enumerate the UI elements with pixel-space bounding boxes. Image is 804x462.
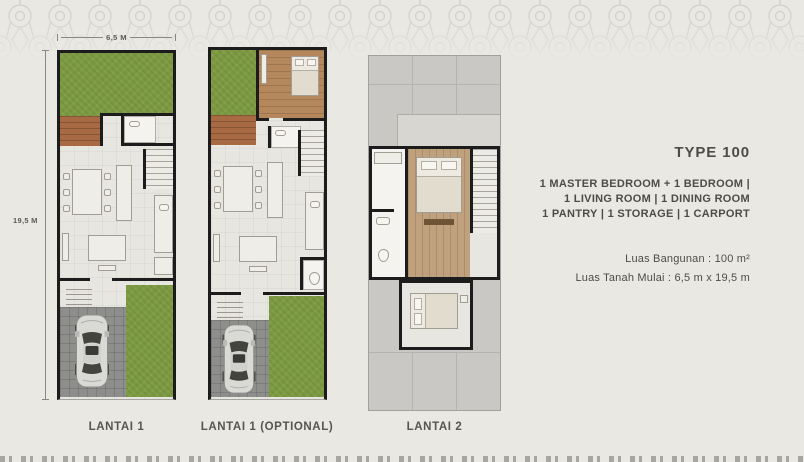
wardrobe (374, 152, 402, 164)
nightstand (460, 295, 468, 303)
interior-wall (300, 257, 324, 260)
car-top-view (222, 324, 256, 394)
width-dimension: 6,5 M (57, 33, 176, 42)
chair (104, 205, 111, 212)
chair (63, 189, 70, 196)
front-garden (60, 53, 173, 116)
sofa (88, 235, 126, 261)
staircase (298, 130, 324, 176)
storage (154, 257, 173, 275)
bathroom (271, 126, 301, 148)
powder-room (124, 116, 156, 143)
building-area: Luas Bangunan : 100 m² (410, 250, 750, 269)
interior-wall (372, 209, 394, 212)
interior-wall (268, 126, 271, 148)
room-list-line-1: 1 MASTER BEDROOM + 1 BEDROOM | (410, 177, 750, 192)
rear-wall (112, 278, 173, 281)
bed (291, 56, 319, 96)
roof-seam (412, 352, 413, 410)
second-bedroom (399, 280, 473, 350)
rear-wall (60, 278, 90, 281)
height-dimension (45, 50, 46, 400)
kitchen-counter (305, 192, 324, 250)
kitchen-island (267, 162, 283, 218)
height-dimension-label: 19,5 M (13, 216, 38, 225)
sink (376, 217, 390, 225)
interior-wall (283, 118, 324, 121)
type-title: TYPE 100 (410, 144, 750, 161)
back-steps (217, 302, 243, 318)
coffee-table (249, 266, 267, 272)
toilet (309, 272, 320, 285)
optional-bedroom (256, 50, 324, 118)
tv-console (62, 233, 69, 261)
interior-wall (300, 257, 303, 290)
wardrobe (261, 54, 267, 84)
duvet (292, 70, 318, 95)
duvet (425, 294, 457, 328)
chair (255, 202, 262, 209)
kitchen-island (116, 165, 132, 221)
rear-wall (211, 292, 241, 295)
interior-wall (256, 50, 259, 118)
rear-wall (263, 292, 324, 295)
pillow (295, 59, 304, 66)
chair (214, 170, 221, 177)
plan-label-lantai-1: LANTAI 1 (57, 421, 176, 433)
chair (104, 189, 111, 196)
dining-table (72, 169, 102, 215)
room-list-line-3: 1 PANTRY | 1 STORAGE | 1 CARPORT (410, 207, 750, 222)
roof-seam (369, 84, 500, 85)
coffee-table (98, 265, 116, 271)
car-top-view (75, 313, 109, 389)
sofa (239, 236, 277, 262)
brochure-canvas: 6,5 M 19,5 M (0, 0, 804, 462)
side-garden (126, 285, 173, 397)
chair (63, 173, 70, 180)
pillow (414, 313, 422, 325)
interior-wall (100, 113, 103, 146)
room-list-line-2: 1 LIVING ROOM | 1 DINING ROOM (410, 192, 750, 207)
chair (214, 202, 221, 209)
tv-console (213, 234, 220, 262)
chair (255, 186, 262, 193)
master-bathroom (372, 149, 405, 277)
chair (104, 173, 111, 180)
entry-deck (60, 116, 100, 146)
roof-seam (456, 352, 457, 410)
dining-table (223, 166, 253, 212)
bed (410, 293, 458, 329)
floorplan-lantai-1 (57, 50, 176, 400)
staircase (143, 149, 173, 189)
land-area: Luas Tanah Mulai : 6,5 m x 19,5 m (410, 269, 750, 288)
kitchen-sink (310, 201, 320, 208)
front-garden (211, 50, 256, 115)
decorative-pattern-bottom (0, 456, 804, 462)
interior-wall (121, 143, 173, 146)
back-steps (66, 289, 92, 305)
side-garden (269, 296, 324, 397)
plan-label-lantai-2: LANTAI 2 (368, 421, 501, 433)
toilet (378, 249, 389, 262)
room-list: 1 MASTER BEDROOM + 1 BEDROOM | 1 LIVING … (410, 177, 750, 222)
area-info: Luas Bangunan : 100 m² Luas Tanah Mulai … (410, 250, 750, 288)
roof-seam (369, 352, 500, 353)
interior-wall (121, 116, 124, 143)
kitchen-counter (154, 195, 173, 253)
bathroom-2 (303, 260, 324, 290)
chair (214, 186, 221, 193)
floorplan-lantai-1-optional (208, 47, 327, 400)
lower-roof (397, 114, 500, 146)
chair (255, 170, 262, 177)
width-dimension-label: 6,5 M (106, 33, 127, 42)
plan-label-lantai-1-optional: LANTAI 1 (OPTIONAL) (187, 421, 347, 433)
interior-wall (256, 118, 269, 121)
pillow (414, 298, 422, 310)
kitchen-sink (159, 204, 169, 211)
sink (275, 130, 286, 136)
type-info-panel: TYPE 100 1 MASTER BEDROOM + 1 BEDROOM | … (410, 144, 750, 288)
chair (63, 205, 70, 212)
entry-deck (211, 115, 256, 145)
pillow (307, 59, 316, 66)
sink (129, 121, 140, 127)
